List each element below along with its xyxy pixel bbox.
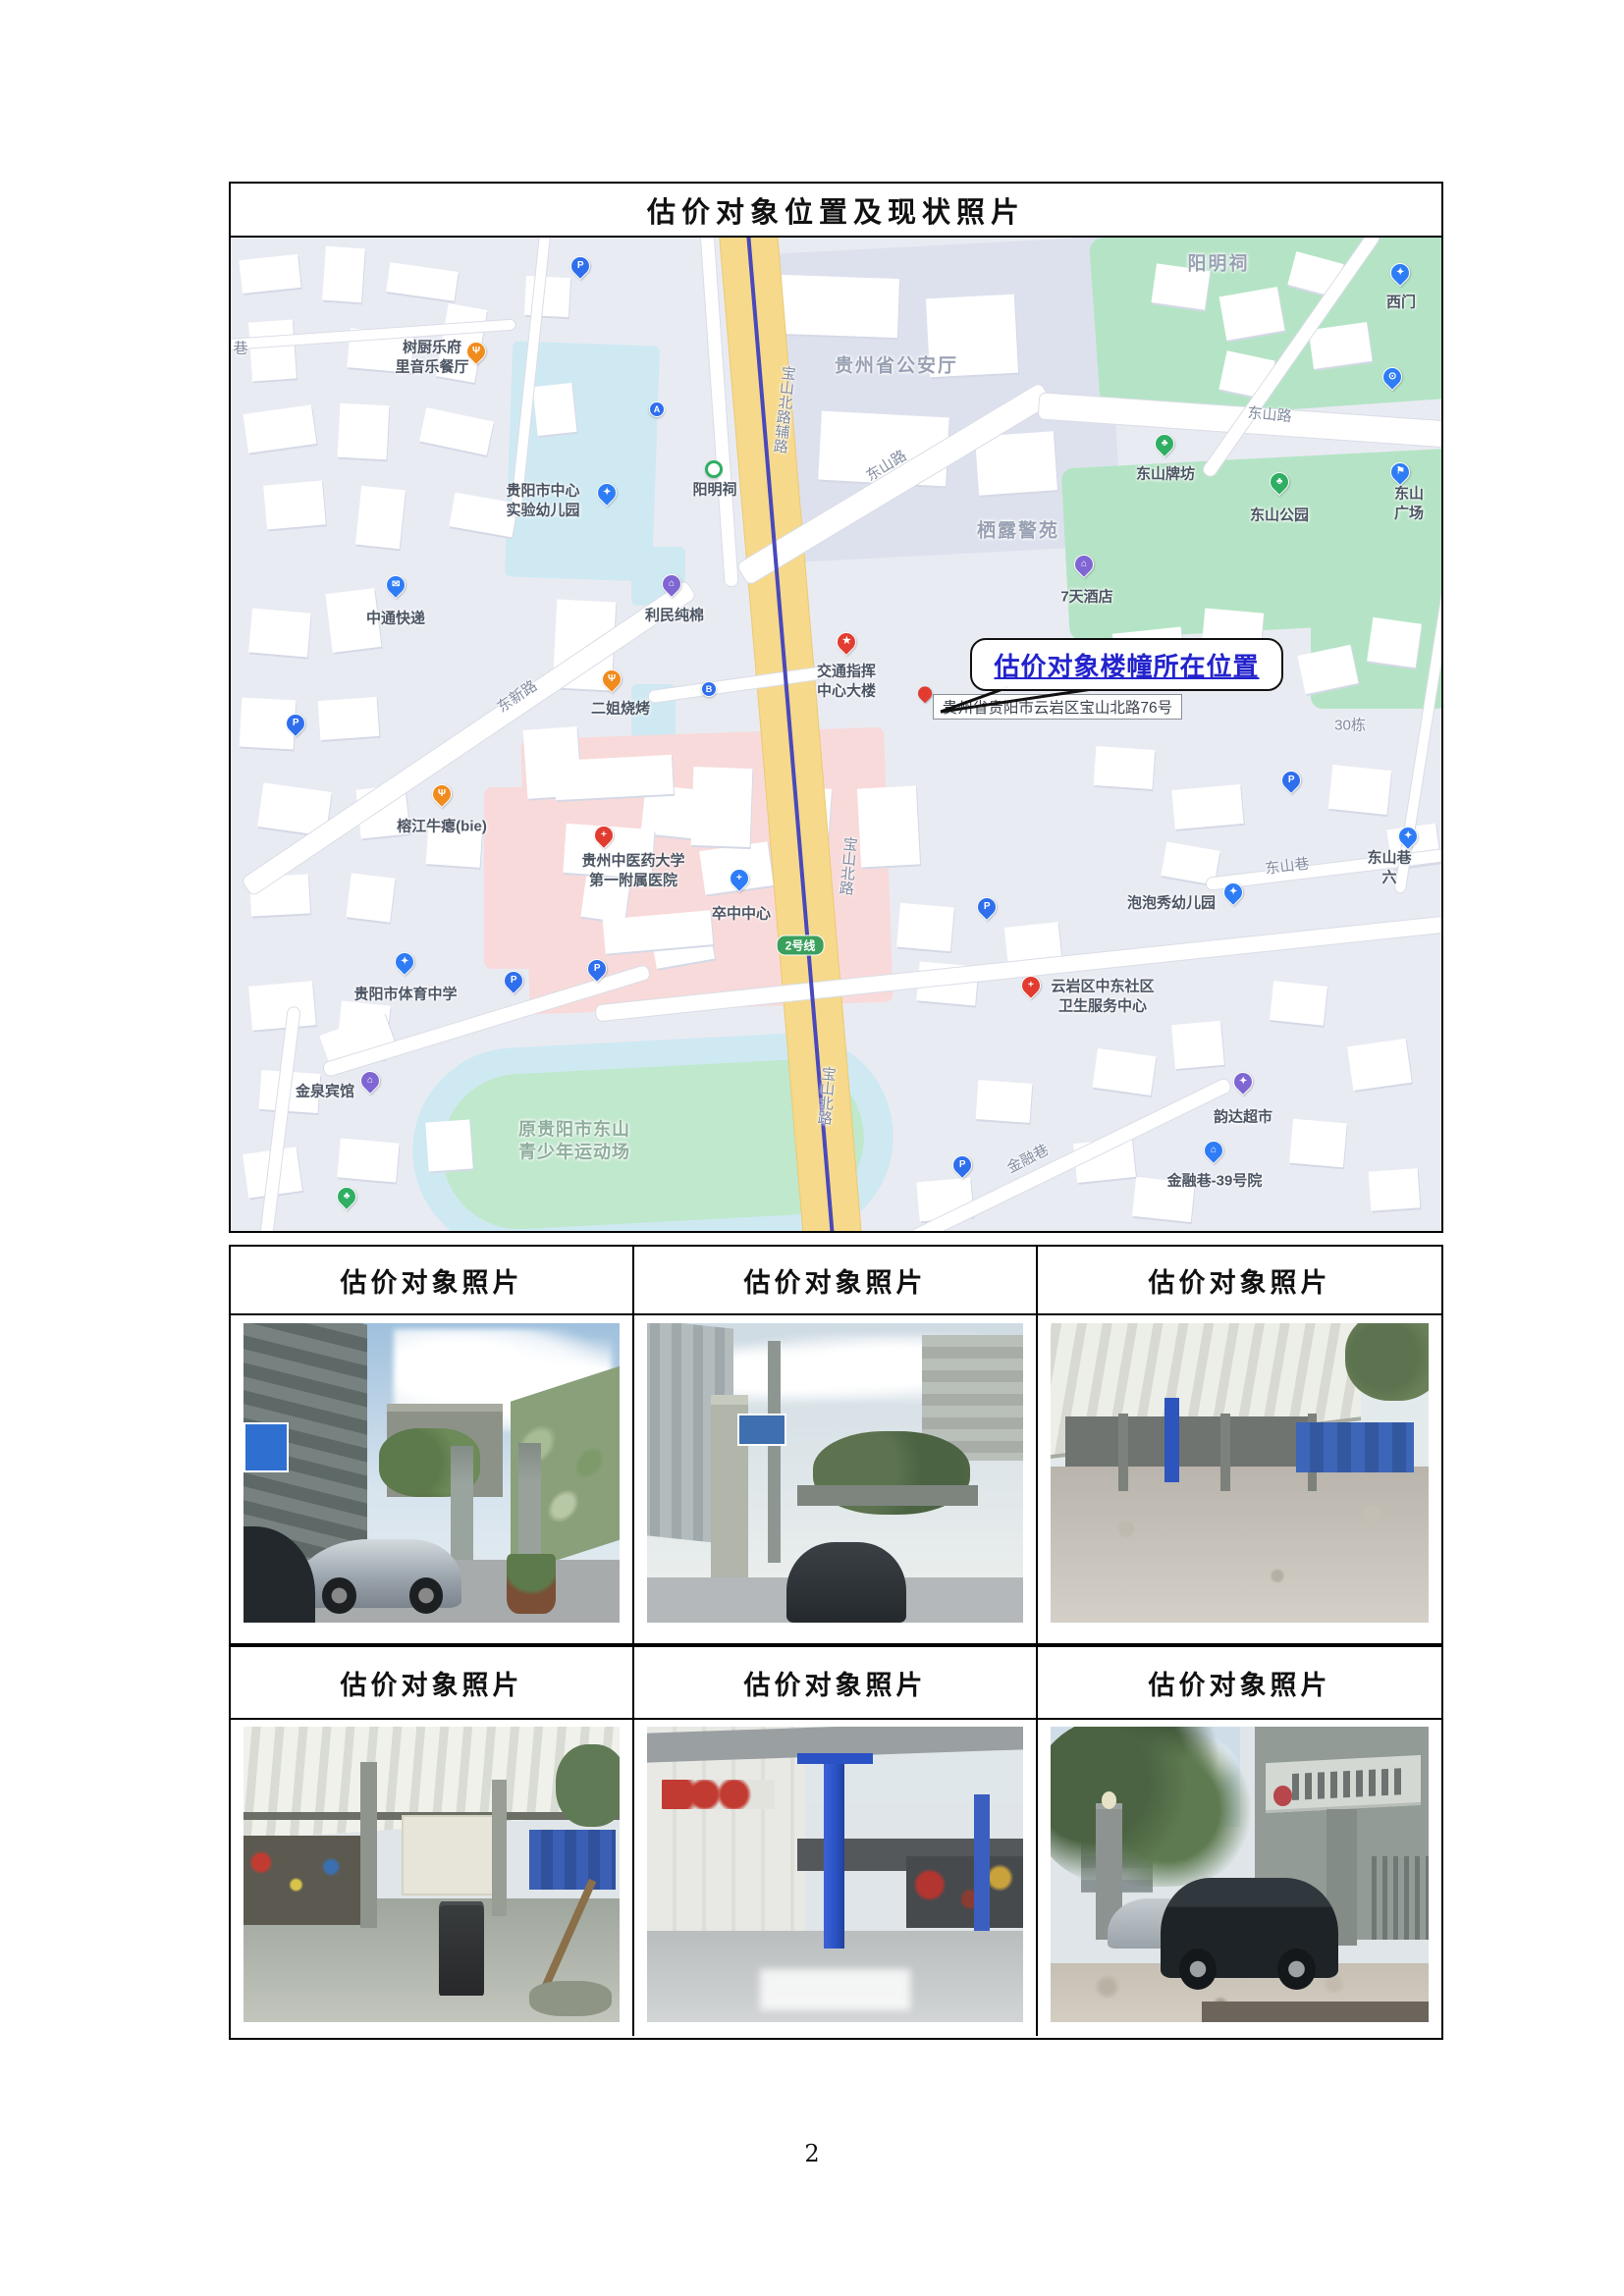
photo-header: 估价对象照片 [1038,1645,1441,1720]
archway-pin: ♣ [1151,430,1178,457]
map-building [1328,765,1391,815]
hotel-pin: ⌂ [356,1067,384,1095]
map-label: 东山公园 [1250,506,1309,525]
tree-pin: ♣ [333,1183,360,1210]
map-label: 贵阳市体育中学 [353,985,457,1004]
map-building [337,1138,399,1182]
location-table-title: 估价对象位置及现状照片 [231,184,1441,238]
map-label: 东山广场 [1393,485,1426,523]
map-building [1093,1048,1157,1095]
parking-pin: P [948,1151,976,1179]
map-building [248,981,316,1030]
map-label: 泡泡秀幼儿园 [1127,893,1216,913]
map-building [1347,1039,1412,1091]
map-label: 巷 [233,339,247,358]
map-building [248,320,297,382]
photo-street-gate-pole [647,1323,1023,1623]
map-label: 云岩区中东社区 卫生服务中心 [1051,978,1154,1016]
metro-line2-badge: 2号线 [777,935,825,956]
map-building [554,755,674,800]
map-building [1309,322,1373,369]
address-map-pin [915,684,935,704]
map-building [1270,981,1327,1026]
map-label: 树厨乐府 里音乐餐厅 [395,339,468,377]
photo-garage-interior [244,1727,620,2022]
location-table: 估价对象位置及现状照片 树厨乐府 里音乐餐厅贵阳市中心 实验幼儿园中通快递二姐烧… [229,182,1443,1233]
map-building [322,246,365,303]
subject-location-callout-text: 估价对象楼幢所在位置 [994,647,1259,683]
map-label: 西门 [1386,293,1416,312]
map-building [355,486,406,549]
photo-header: 估价对象照片 [634,1645,1038,1720]
map-label: 金泉宾馆 [296,1082,354,1101]
map-label: 金融巷-39号院 [1167,1171,1263,1191]
photo-header: 估价对象照片 [1038,1247,1441,1315]
photo-header: 估价对象照片 [634,1247,1038,1315]
metro-station-pin [705,460,723,478]
map-building [857,785,920,867]
map-label: 东山路 [1247,403,1293,426]
photo-carport-yard [1051,1323,1429,1623]
photo-header: 估价对象照片 [231,1247,634,1315]
map-building [691,767,753,847]
parking-pin: P [567,252,594,280]
map-building [1094,746,1156,789]
page-number: 2 [0,2140,1624,2167]
map-building [976,1080,1033,1123]
express-pin: ✉ [382,571,409,599]
restaurant-pin: Ψ [428,780,456,808]
subject-location-callout: 估价对象楼幢所在位置 [970,638,1283,691]
map-building [1171,784,1243,829]
parking-pin: P [500,967,527,994]
school-pin: ✦ [391,948,418,976]
map-building [239,254,300,294]
map-label: 榕江牛瘪(bie) [397,817,487,836]
map-building [386,262,458,300]
photo-header: 估价对象照片 [231,1645,634,1720]
photo-entrance-black-suv [1051,1727,1429,2022]
metro-entrance-b: B [701,681,717,697]
map-building [346,873,395,922]
map-label: 东山牌坊 [1136,464,1195,484]
map-building [1367,617,1422,668]
location-map: 树厨乐府 里音乐餐厅贵阳市中心 实验幼儿园中通快递二姐烧烤榕江牛瘪(bie)贵州… [231,238,1441,1231]
map-label: 栖露警苑 [977,520,1059,545]
map-building [318,697,380,740]
map-building [780,275,899,338]
map-label: 利民纯棉 [645,606,704,625]
map-label: 二姐烧烤 [591,699,650,719]
photo-table: 估价对象照片 估价对象照片 估价对象照片 估价对象照片 估价对象照片 估价对象照… [229,1245,1443,2040]
map-building [532,383,576,436]
map-building [248,608,311,657]
map-label: 韵达超市 [1214,1107,1272,1127]
photo-workshop-lift [647,1727,1023,2022]
map-building [244,404,317,453]
photo-street-silver-car [244,1323,620,1623]
map-label: 贵阳市中心 实验幼儿园 [506,482,579,520]
map-label: 阳明祠 [692,480,736,500]
photo-cell [1038,1315,1441,1645]
map-label: 卒中中心 [712,904,771,924]
map-label: 贵州中医药大学 第一附属医院 [581,852,684,890]
map-label: 交通指挥 中心大楼 [817,663,876,701]
map-label: 30栋 [1334,716,1366,735]
map-building [1369,1168,1421,1210]
photo-cell [1038,1720,1441,2036]
courtyard-pin: ⌂ [1200,1137,1227,1164]
map-label: 7天酒店 [1060,587,1112,607]
photo-cell [634,1315,1038,1645]
metro-entrance-a: A [649,401,665,417]
photo-cell [634,1720,1038,2036]
map-building [338,403,390,460]
supermarket-pin: ✦ [1229,1068,1257,1095]
map-building [425,1119,472,1171]
parking-pin: P [1277,767,1305,794]
map-building [896,903,954,952]
map-road [260,1007,300,1231]
map-label: 东山巷六 [1364,849,1416,887]
map-building [263,480,326,529]
parking-pin: P [973,893,1001,921]
photo-cell [231,1720,634,2036]
hospital-pink-area-2 [484,787,568,969]
map-building [1171,1021,1224,1069]
traffic-center-pin: ★ [833,628,860,656]
map-label: 贵州省公安厅 [835,355,958,380]
map-label: 阳明祠 [1187,253,1249,278]
map-building [1289,1119,1347,1168]
map-label: 中通快递 [366,609,425,628]
map-label: 原贵阳市东山 青少年运动场 [518,1119,630,1165]
map-building [419,407,494,455]
photo-cell [231,1315,634,1645]
document-page: 估价对象位置及现状照片 树厨乐府 里音乐餐厅贵阳市中心 实验幼儿园中通快递二姐烧… [0,0,1624,2296]
